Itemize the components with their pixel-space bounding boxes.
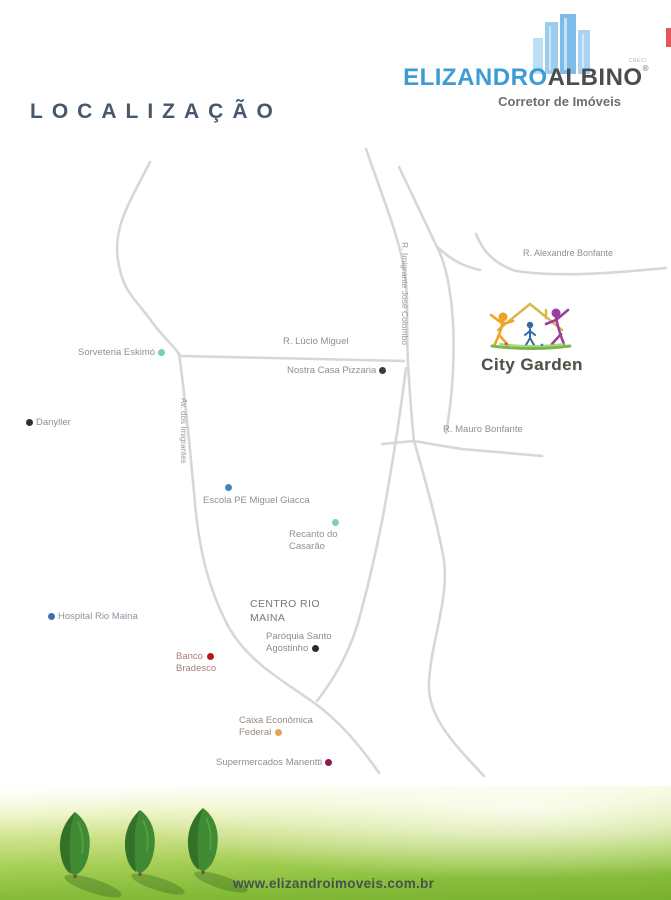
poi-sorveteria-eskimo: Sorveteria Eskimó <box>78 347 165 359</box>
poi-label-line1: Paróquia Santo <box>266 631 332 643</box>
poi-marker-dot <box>312 645 319 652</box>
poi-paroquia-santo-agostinho: Paróquia Santo Agostinho <box>266 631 332 655</box>
road-label-lucio-miguel: R. Lúcio Miguel <box>283 336 348 347</box>
poi-label: Danyller <box>36 417 71 429</box>
road-lucio-miguel <box>181 356 404 361</box>
poi-marker-dot <box>48 613 55 620</box>
poi-hospital-rio-maina: Hospital Rio Maina <box>48 611 138 623</box>
poi-marker-dot <box>275 729 282 736</box>
poi-marker-dot <box>325 759 332 766</box>
road-label-imigrante-jose-colombo: R. Imigrante José Colombo <box>400 242 410 447</box>
poi-label: Sorveteria Eskimó <box>78 347 155 359</box>
district-line2: MAINA <box>250 612 320 626</box>
district-label: CENTRO RIO MAINA <box>250 598 320 625</box>
poi-label: Hospital Rio Maina <box>58 611 138 623</box>
poi-marker-dot <box>158 349 165 356</box>
website-url: www.elizandroimoveis.com.br <box>233 876 434 891</box>
poi-label: Nostra Casa Pizzaria <box>287 365 376 377</box>
poi-danyller: Danyller <box>26 417 71 429</box>
road-label-alexandre-bonfante: R. Alexandre Bonfante <box>523 248 613 258</box>
poi-marker-dot <box>379 367 386 374</box>
road-imigrante-colombo-lower <box>414 441 484 776</box>
poi-escola-pe-miguel-giacca: Escola PE Miguel Giacca <box>203 495 310 507</box>
poi-nostra-casa-pizzaria: Nostra Casa Pizzaria <box>287 365 386 377</box>
poi-marker-dot <box>207 653 214 660</box>
poi-supermercados-manentti: Supermercados Manentti <box>216 757 332 769</box>
poi-label: Supermercados Manentti <box>216 757 322 769</box>
roads-map <box>0 0 671 790</box>
poi-label-line2: Agostinho <box>266 643 308 655</box>
city-garden-icon <box>470 296 594 350</box>
road-av-imigrantes <box>179 354 379 773</box>
poi-caixa-economica-federal: Caixa Econômica Federal <box>239 715 313 739</box>
poi-banco-bradesco: Banco Bradesco <box>176 651 216 675</box>
poi-label-line2: Federal <box>239 727 271 739</box>
development-name: City Garden <box>470 355 594 375</box>
poi-marker-dot <box>332 519 339 526</box>
poi-label-line2: Casarão <box>289 541 325 553</box>
poi-label-line1: Banco <box>176 651 203 663</box>
city-garden-logo: City Garden <box>470 296 594 375</box>
poi-marker-dot <box>26 419 33 426</box>
poi-recanto-do-casarao: Recanto do Casarão <box>289 529 338 553</box>
localizacao-flyer: CRECI ELIZANDROALBINO® Corretor de Imóve… <box>0 0 671 900</box>
poi-marker-dot <box>225 484 232 491</box>
poi-label: Escola PE Miguel Giacca <box>203 495 310 507</box>
poi-label-line2: Bradesco <box>176 663 216 675</box>
poi-label-line1: Recanto do <box>289 529 338 541</box>
road-label-mauro-bonfante: R. Mauro Bonfante <box>443 424 523 435</box>
road-left-top <box>117 162 179 354</box>
poi-label-line1: Caixa Econômica <box>239 715 313 727</box>
road-label-av-dos-imigrantes: Av. dos Imigrantes <box>179 398 188 494</box>
district-line1: CENTRO RIO <box>250 598 320 612</box>
